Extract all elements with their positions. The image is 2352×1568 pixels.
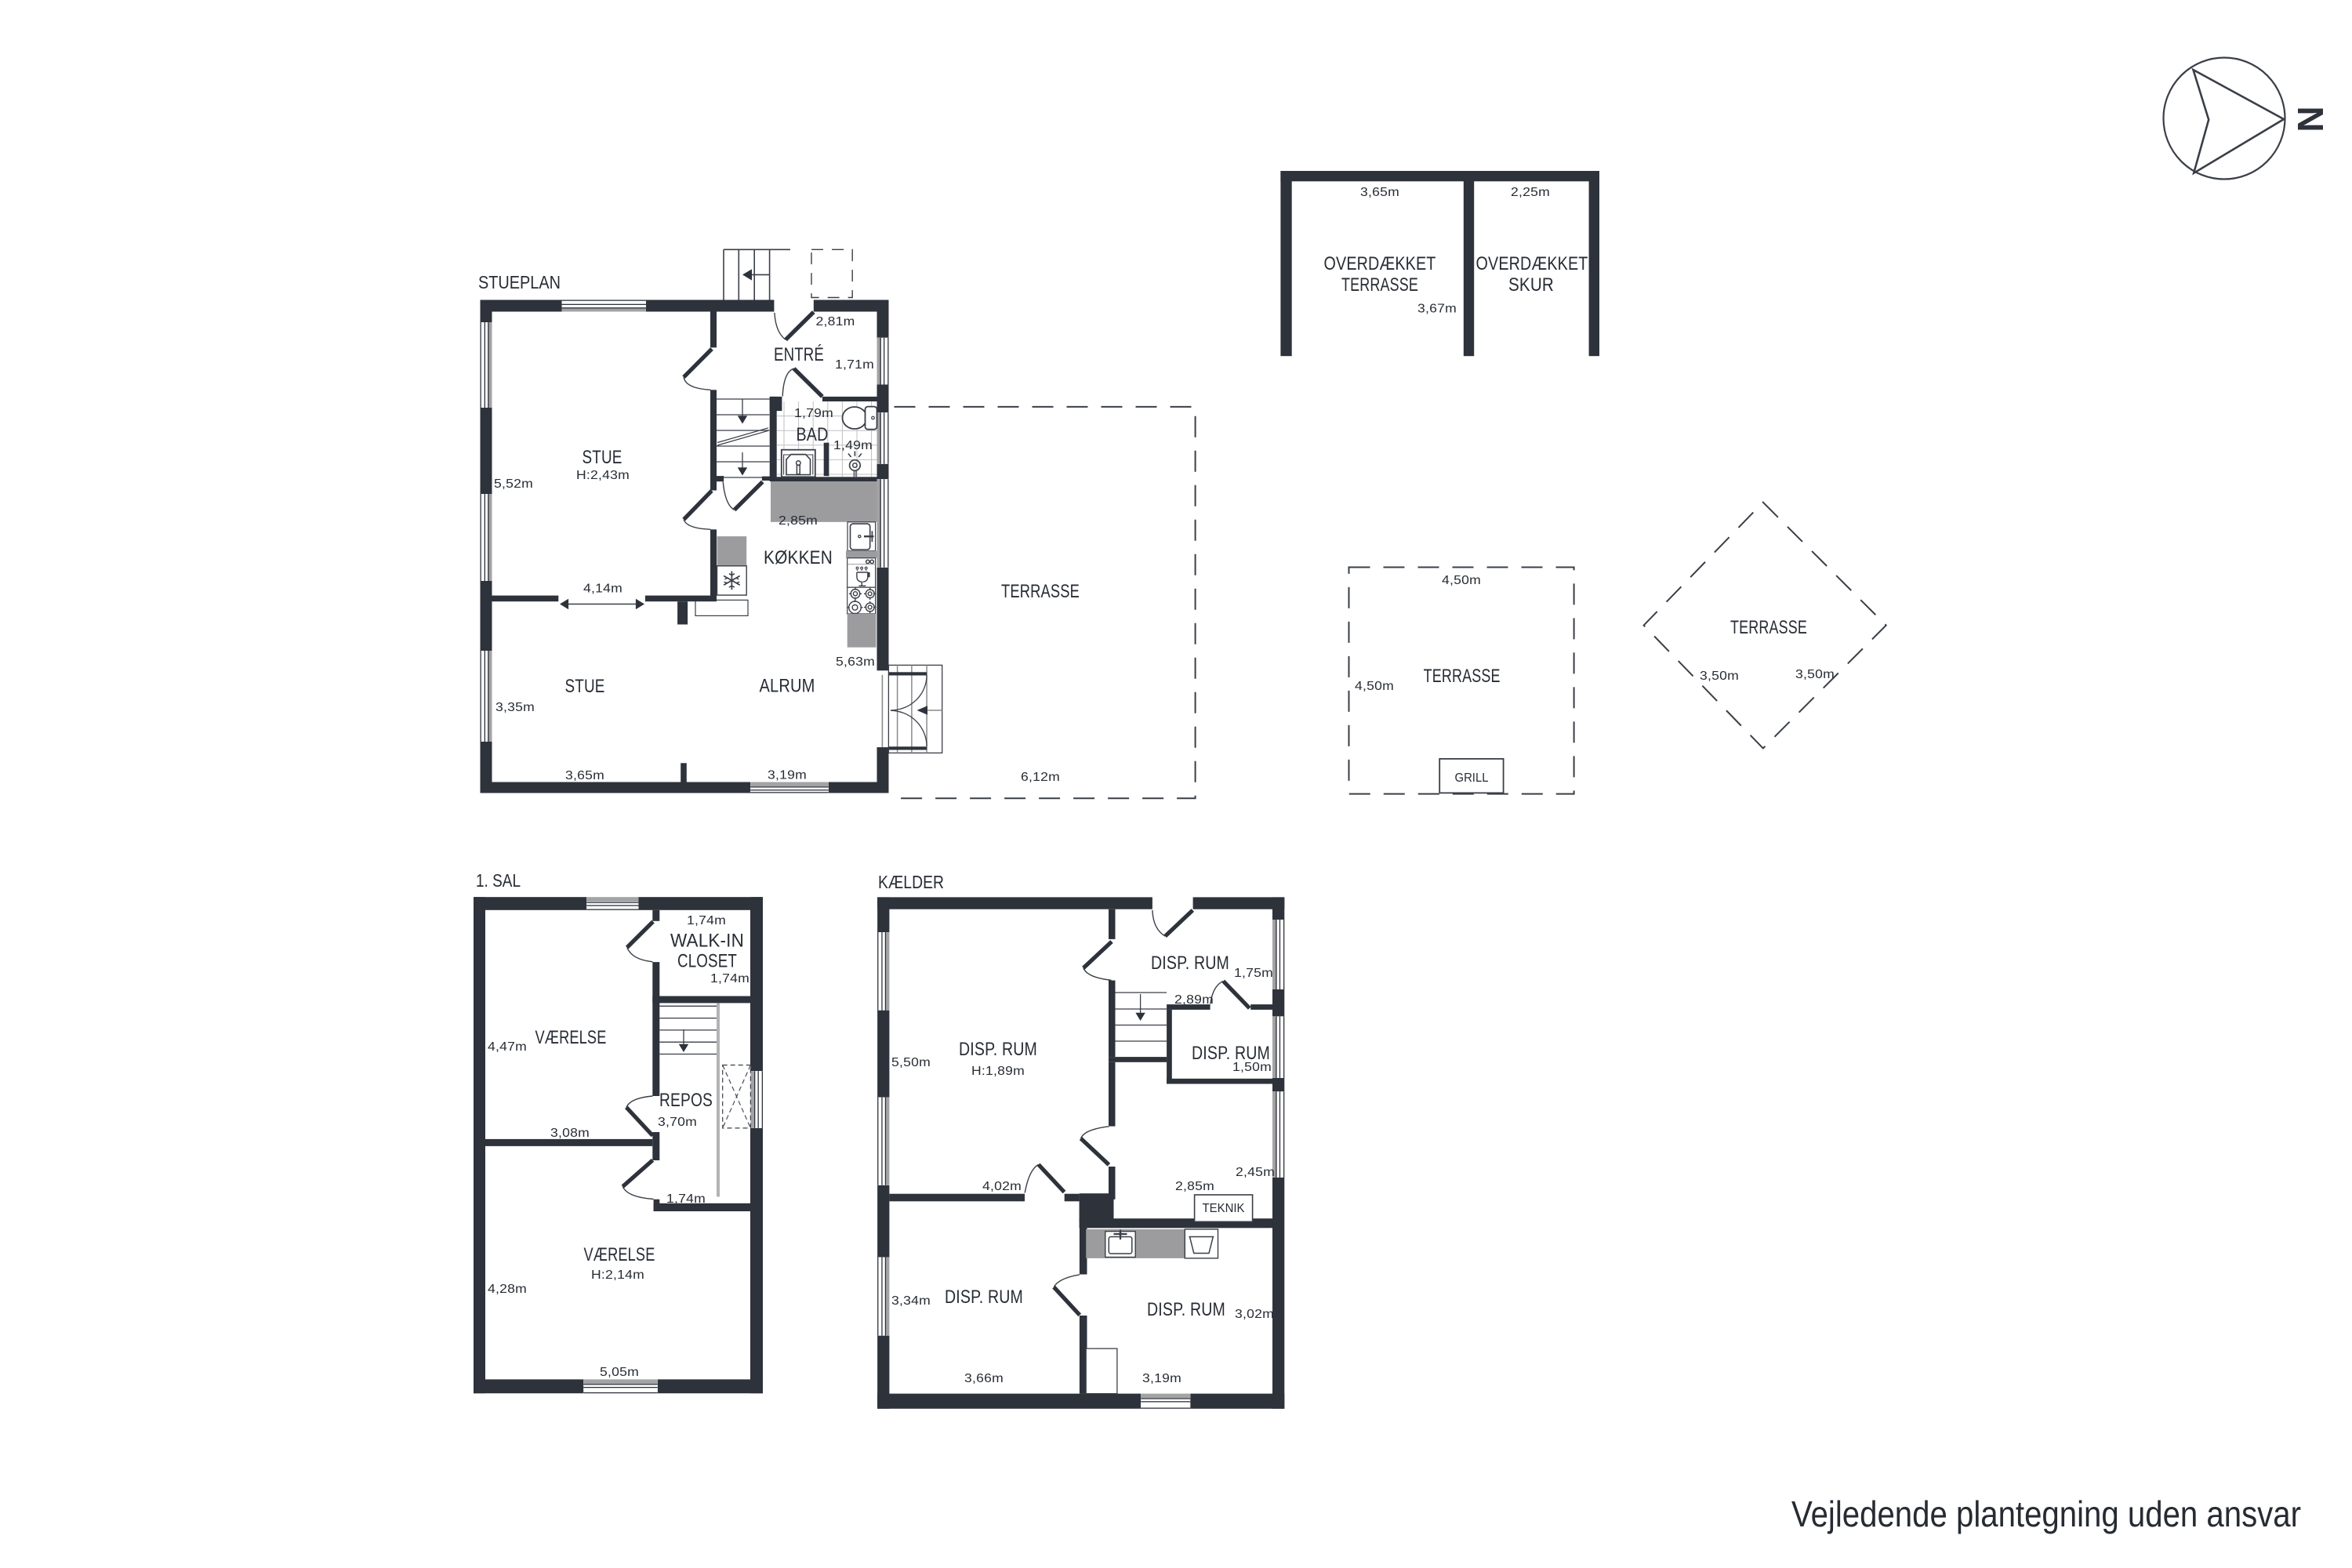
svg-text:GRILL: GRILL xyxy=(1455,771,1489,785)
svg-text:3,34m: 3,34m xyxy=(891,1294,931,1308)
svg-text:3,67m: 3,67m xyxy=(1417,303,1457,316)
svg-text:TERRASSE: TERRASSE xyxy=(1424,666,1501,687)
svg-text:1,74m: 1,74m xyxy=(666,1192,706,1206)
svg-text:3,02m: 3,02m xyxy=(1235,1308,1274,1321)
svg-text:1,75m: 1,75m xyxy=(1234,967,1273,980)
svg-text:TEKNIK: TEKNIK xyxy=(1203,1202,1246,1215)
svg-text:3,70m: 3,70m xyxy=(658,1116,697,1129)
svg-text:4,14m: 4,14m xyxy=(583,583,622,596)
svg-text:5,63m: 5,63m xyxy=(836,655,875,669)
svg-text:DISP. RUM: DISP. RUM xyxy=(959,1039,1037,1060)
svg-text:3,19m: 3,19m xyxy=(1142,1372,1181,1385)
svg-text:2,89m: 2,89m xyxy=(1174,993,1214,1007)
svg-text:3,08m: 3,08m xyxy=(550,1127,590,1140)
svg-text:1. SAL: 1. SAL xyxy=(476,870,521,891)
svg-text:3,50m: 3,50m xyxy=(1795,668,1835,681)
svg-text:1,49m: 1,49m xyxy=(833,439,873,452)
svg-text:H:2,43m: H:2,43m xyxy=(576,469,630,482)
svg-text:3,66m: 3,66m xyxy=(964,1372,1004,1385)
svg-text:VÆRELSE: VÆRELSE xyxy=(584,1244,655,1265)
svg-text:DISP. RUM: DISP. RUM xyxy=(1151,953,1229,974)
svg-text:H:1,89m: H:1,89m xyxy=(971,1065,1025,1078)
svg-text:STUE: STUE xyxy=(583,447,622,468)
svg-text:ALRUM: ALRUM xyxy=(760,676,815,697)
svg-text:SKUR: SKUR xyxy=(1508,274,1554,296)
svg-text:5,52m: 5,52m xyxy=(494,477,533,491)
svg-text:KØKKEN: KØKKEN xyxy=(764,547,833,568)
svg-text:ENTRÉ: ENTRÉ xyxy=(774,344,824,365)
svg-text:Vejledende plantegning uden an: Vejledende plantegning uden ansvar xyxy=(1791,1494,2301,1534)
svg-text:1,71m: 1,71m xyxy=(835,358,874,372)
svg-text:2,45m: 2,45m xyxy=(1236,1166,1275,1179)
svg-text:4,02m: 4,02m xyxy=(982,1180,1022,1193)
svg-text:DISP. RUM: DISP. RUM xyxy=(1147,1299,1225,1320)
svg-text:2,85m: 2,85m xyxy=(1175,1180,1214,1193)
svg-text:KÆLDER: KÆLDER xyxy=(878,872,944,892)
svg-text:DISP. RUM: DISP. RUM xyxy=(945,1287,1023,1308)
svg-text:H:2,14m: H:2,14m xyxy=(591,1269,644,1282)
svg-text:TERRASSE: TERRASSE xyxy=(1001,581,1080,602)
svg-text:N: N xyxy=(2290,106,2331,132)
svg-text:5,05m: 5,05m xyxy=(600,1366,639,1379)
svg-text:1,50m: 1,50m xyxy=(1232,1061,1272,1074)
svg-text:TERRASSE: TERRASSE xyxy=(1341,274,1418,296)
svg-text:3,65m: 3,65m xyxy=(565,769,604,782)
svg-text:BAD: BAD xyxy=(797,424,829,445)
svg-text:STUEPLAN: STUEPLAN xyxy=(478,272,561,292)
svg-text:2,25m: 2,25m xyxy=(1511,186,1550,199)
svg-text:5,50m: 5,50m xyxy=(891,1056,931,1069)
svg-text:4,47m: 4,47m xyxy=(488,1040,527,1054)
svg-text:4,50m: 4,50m xyxy=(1355,680,1394,693)
svg-text:2,81m: 2,81m xyxy=(816,315,855,328)
svg-text:STUE: STUE xyxy=(565,676,605,697)
svg-text:6,12m: 6,12m xyxy=(1021,771,1060,784)
svg-text:OVERDÆKKET: OVERDÆKKET xyxy=(1476,253,1588,274)
svg-text:1,74m: 1,74m xyxy=(710,972,750,985)
svg-text:4,28m: 4,28m xyxy=(488,1283,527,1296)
svg-text:4,50m: 4,50m xyxy=(1442,574,1481,587)
svg-text:OVERDÆKKET: OVERDÆKKET xyxy=(1324,253,1436,274)
svg-text:3,50m: 3,50m xyxy=(1700,670,1739,683)
svg-text:TERRASSE: TERRASSE xyxy=(1730,617,1807,638)
svg-text:CLOSET: CLOSET xyxy=(677,951,737,972)
svg-text:WALK-IN: WALK-IN xyxy=(670,931,744,952)
svg-text:3,35m: 3,35m xyxy=(495,701,535,714)
svg-text:3,65m: 3,65m xyxy=(1360,186,1399,199)
svg-text:VÆRELSE: VÆRELSE xyxy=(535,1027,607,1048)
svg-text:2,85m: 2,85m xyxy=(779,514,818,528)
svg-text:REPOS: REPOS xyxy=(659,1090,713,1111)
svg-text:1,79m: 1,79m xyxy=(794,407,833,420)
svg-text:3,19m: 3,19m xyxy=(768,769,807,782)
svg-text:1,74m: 1,74m xyxy=(687,914,726,927)
